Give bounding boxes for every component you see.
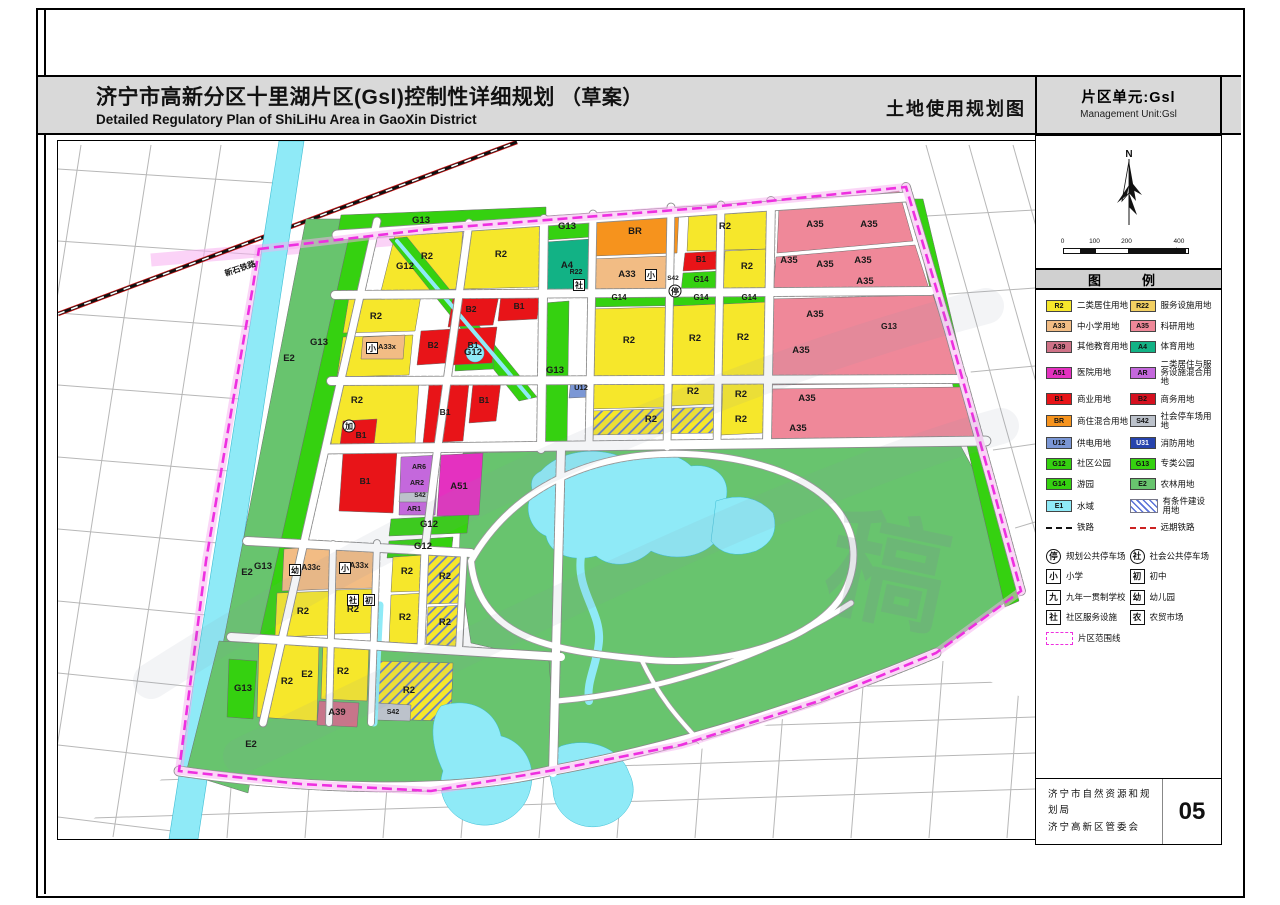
svg-text:E2: E2 <box>245 739 257 750</box>
svg-text:B2: B2 <box>428 340 439 350</box>
legend-label: 商业用地 <box>1077 395 1111 404</box>
legend-item: A39其他教育用地 <box>1046 339 1130 354</box>
legend-item: A35科研用地 <box>1130 319 1214 334</box>
legend-item: E1水域 <box>1046 497 1130 515</box>
page-title: 济宁市高新分区十里湖片区(Gsl)控制性详细规划（草案） <box>96 81 643 111</box>
legend-label: 服务设施用地 <box>1161 301 1212 310</box>
color-swatch: S42 <box>1130 415 1156 427</box>
svg-text:R2: R2 <box>370 311 382 322</box>
legend-item: 农农贸市场 <box>1130 610 1214 625</box>
legend-label: 供电用地 <box>1077 439 1111 448</box>
color-swatch: A33 <box>1046 320 1072 332</box>
svg-text:B1: B1 <box>479 396 490 405</box>
legend-item: G13专类公园 <box>1130 456 1214 471</box>
railway-line-icon <box>1046 527 1072 529</box>
svg-text:R2: R2 <box>439 617 451 628</box>
legend-item: U12供电用地 <box>1046 436 1130 451</box>
compass-block: N <box>1036 136 1221 238</box>
legend-item: 社社会公共停车场 <box>1130 549 1214 564</box>
svg-text:A35: A35 <box>806 219 824 230</box>
binding-line <box>44 8 46 894</box>
scale-labels: 0100200400米 <box>1063 238 1195 248</box>
svg-text:B1: B1 <box>440 407 451 417</box>
svg-text:A35: A35 <box>816 259 834 270</box>
legend-item: 幼幼儿园 <box>1130 590 1214 605</box>
legend-label: 铁路 <box>1077 523 1094 532</box>
legend-item: G12社区公园 <box>1046 456 1130 471</box>
legend-row: A51医院用地AR二类居住与服务设施混合用地 <box>1046 360 1213 387</box>
svg-text:G13: G13 <box>558 221 576 232</box>
legend-label: 体育用地 <box>1161 342 1195 351</box>
legend-label: 初中 <box>1150 572 1167 581</box>
svg-text:A35: A35 <box>798 393 816 404</box>
svg-text:B1: B1 <box>356 430 367 440</box>
svg-text:R2: R2 <box>337 666 349 677</box>
legend-label: 社会停车场用地 <box>1161 412 1214 430</box>
legend-label: 农贸市场 <box>1150 613 1184 622</box>
svg-text:AR6: AR6 <box>412 464 426 471</box>
svg-text:R2: R2 <box>421 251 433 262</box>
svg-text:A33x: A33x <box>349 561 369 570</box>
svg-text:R2: R2 <box>737 332 749 343</box>
facility-symbol-icon: 农 <box>1130 610 1145 625</box>
svg-text:R22: R22 <box>570 269 583 276</box>
svg-text:加: 加 <box>344 421 353 431</box>
legend-boundary-row: 片区范围线 <box>1046 631 1213 646</box>
legend-item: 有条件建设用地 <box>1130 497 1214 515</box>
color-swatch: G12 <box>1046 458 1072 470</box>
svg-text:A33x: A33x <box>378 342 397 351</box>
legend-label: 小学 <box>1066 572 1083 581</box>
svg-text:S42: S42 <box>414 492 426 499</box>
sidebar: N 0100200400米 图 例 R2二类居住用地R22服务设施用地A33中小… <box>1035 135 1222 845</box>
land-use-map: 稿G13G13G13G13G13G13G13E2E2E2E2G12G12G12G… <box>58 141 1036 839</box>
color-swatch: AR <box>1130 367 1156 379</box>
legend-item: A4体育用地 <box>1130 339 1214 354</box>
legend-item: B1商业用地 <box>1046 392 1130 407</box>
svg-text:B1: B1 <box>514 301 525 311</box>
scale-bar-segments <box>1063 248 1189 254</box>
future-railway-line-icon <box>1130 527 1156 529</box>
map-canvas: 稿G13G13G13G13G13G13G13E2E2E2E2G12G12G12G… <box>57 140 1037 840</box>
color-swatch: E1 <box>1046 500 1072 512</box>
draft-tag: （草案） <box>561 87 643 109</box>
color-swatch: A39 <box>1046 341 1072 353</box>
svg-text:G12: G12 <box>420 519 438 530</box>
svg-text:G13: G13 <box>881 321 897 331</box>
svg-text:小: 小 <box>340 563 349 573</box>
legend-label: 农林用地 <box>1161 480 1195 489</box>
color-swatch: U31 <box>1130 437 1156 449</box>
svg-text:A33: A33 <box>618 269 635 280</box>
svg-text:R2: R2 <box>401 566 413 577</box>
legend-row: E1水域有条件建设用地 <box>1046 497 1213 515</box>
svg-text:AR2: AR2 <box>410 480 424 487</box>
title-block: 济宁市高新分区十里湖片区(Gsl)控制性详细规划（草案） Detailed Re… <box>96 81 643 127</box>
svg-text:G13: G13 <box>310 337 328 348</box>
svg-text:E2: E2 <box>283 353 295 364</box>
legend-list: R2二类居住用地R22服务设施用地A33中小学用地A35科研用地A39其他教育用… <box>1036 290 1221 535</box>
svg-text:B1: B1 <box>696 255 707 264</box>
svg-text:幼: 幼 <box>291 565 299 575</box>
legend-item: S42社会停车场用地 <box>1130 412 1214 430</box>
svg-text:G14: G14 <box>693 293 709 302</box>
color-swatch: A35 <box>1130 320 1156 332</box>
svg-text:S42: S42 <box>387 709 400 716</box>
color-swatch: U12 <box>1046 437 1072 449</box>
svg-text:初: 初 <box>365 595 373 605</box>
legend-label: 水域 <box>1077 502 1094 511</box>
color-swatch: G13 <box>1130 458 1156 470</box>
svg-text:R2: R2 <box>689 333 701 344</box>
title-band: 济宁市高新分区十里湖片区(Gsl)控制性详细规划（草案） Detailed Re… <box>38 75 1241 135</box>
legend-item: E2农林用地 <box>1130 477 1214 492</box>
svg-text:A35: A35 <box>860 219 878 230</box>
legend-row: U12供电用地U31消防用地 <box>1046 436 1213 451</box>
facility-symbol-icon: 停 <box>1046 549 1061 564</box>
legend-item: 铁路 <box>1046 520 1130 535</box>
color-swatch: E2 <box>1130 478 1156 490</box>
svg-text:G13: G13 <box>254 561 272 572</box>
svg-text:B2: B2 <box>466 304 477 314</box>
svg-text:社: 社 <box>574 280 583 290</box>
unit-label-cn: 片区单元:Gsl <box>1037 86 1220 107</box>
facility-symbol-icon: 幼 <box>1130 590 1145 605</box>
facility-symbol-icon: 小 <box>1046 569 1061 584</box>
svg-text:E2: E2 <box>301 669 313 680</box>
legend-item: 初初中 <box>1130 569 1214 584</box>
svg-text:G13: G13 <box>234 683 252 694</box>
legend-item: 九九年一贯制学校 <box>1046 590 1130 605</box>
color-swatch: G14 <box>1046 478 1072 490</box>
svg-text:G12: G12 <box>396 261 414 272</box>
legend-item: 远期铁路 <box>1130 520 1214 535</box>
color-swatch: A51 <box>1046 367 1072 379</box>
legend-label: 二类居住与服务设施混合用地 <box>1161 360 1214 387</box>
svg-text:R2: R2 <box>741 261 753 272</box>
svg-text:R2: R2 <box>495 249 507 260</box>
svg-text:小: 小 <box>367 343 376 353</box>
legend-label: 社会公共停车场 <box>1150 552 1210 561</box>
legend-item: BR商住混合用地 <box>1046 412 1130 430</box>
svg-text:R2: R2 <box>735 389 747 400</box>
svg-text:R2: R2 <box>281 676 293 687</box>
svg-text:BR: BR <box>628 226 642 237</box>
legend-item: 片区范围线 <box>1046 631 1130 646</box>
map-sheet-name: 土地使用规划图 <box>876 95 1036 121</box>
svg-text:社: 社 <box>348 595 357 605</box>
legend-item: A33中小学用地 <box>1046 319 1130 334</box>
facility-symbol-icon: 社 <box>1046 610 1061 625</box>
color-swatch: R2 <box>1046 300 1072 312</box>
legend-label: 医院用地 <box>1077 368 1111 377</box>
legend-label: 社区服务设施 <box>1066 613 1117 622</box>
legend-label: 幼儿园 <box>1150 593 1176 602</box>
legend-label: 消防用地 <box>1161 439 1195 448</box>
svg-text:AR1: AR1 <box>407 506 421 513</box>
svg-text:G12: G12 <box>414 541 432 552</box>
color-swatch: A4 <box>1130 341 1156 353</box>
svg-text:R2: R2 <box>645 414 657 425</box>
color-swatch: BR <box>1046 415 1072 427</box>
legend-item: AR二类居住与服务设施混合用地 <box>1130 360 1214 387</box>
legend-label: 二类居住用地 <box>1077 301 1128 310</box>
svg-text:A35: A35 <box>789 423 807 434</box>
legend-row: B1商业用地B2商务用地 <box>1046 392 1213 407</box>
legend-symbol-row: 小小学初初中 <box>1046 569 1213 584</box>
svg-text:小: 小 <box>646 270 655 280</box>
hatch-swatch <box>1130 499 1158 513</box>
color-swatch: R22 <box>1130 300 1156 312</box>
legend-item <box>1130 631 1214 646</box>
svg-text:A35: A35 <box>806 309 824 320</box>
facility-symbol-icon: 九 <box>1046 590 1061 605</box>
svg-text:R2: R2 <box>735 414 747 425</box>
svg-text:G14: G14 <box>611 293 627 302</box>
legend-label: 九年一贯制学校 <box>1066 593 1126 602</box>
north-arrow-icon: N <box>1106 145 1152 229</box>
north-label: N <box>1125 149 1132 160</box>
legend-label: 其他教育用地 <box>1077 342 1128 351</box>
svg-text:R2: R2 <box>403 685 415 696</box>
boundary-swatch <box>1046 632 1073 645</box>
legend-item: A51医院用地 <box>1046 360 1130 387</box>
svg-text:G13: G13 <box>546 365 564 376</box>
svg-text:B1: B1 <box>468 340 479 350</box>
unit-label-en: Management Unit:Gsl <box>1037 109 1220 120</box>
page-number: 05 <box>1162 779 1221 844</box>
color-swatch: B2 <box>1130 393 1156 405</box>
legend-item: 社社区服务设施 <box>1046 610 1130 625</box>
legend-symbols: 停规划公共停车场社社会公共停车场小小学初初中九九年一贯制学校幼幼儿园社社区服务设… <box>1036 541 1221 646</box>
legend-label: 专类公园 <box>1161 459 1195 468</box>
svg-text:S42: S42 <box>667 275 679 282</box>
page-title-cn: 济宁市高新分区十里湖片区(Gsl)控制性详细规划 <box>96 86 555 109</box>
legend-label: 科研用地 <box>1161 322 1195 331</box>
legend-symbol-row: 九九年一贯制学校幼幼儿园 <box>1046 590 1213 605</box>
legend-label: 社区公园 <box>1077 459 1111 468</box>
legend-item: 小小学 <box>1046 569 1130 584</box>
agency-line1: 济宁市自然资源和规划局 <box>1048 787 1162 819</box>
legend-item: U31消防用地 <box>1130 436 1214 451</box>
legend-label: 中小学用地 <box>1077 322 1120 331</box>
legend-item: 停规划公共停车场 <box>1046 549 1130 564</box>
unit-box: 片区单元:Gsl Management Unit:Gsl <box>1035 77 1222 133</box>
svg-text:R2: R2 <box>623 335 635 346</box>
svg-text:A35: A35 <box>856 276 874 287</box>
legend-row: G14游园E2农林用地 <box>1046 477 1213 492</box>
legend-label: 片区范围线 <box>1078 634 1121 643</box>
facility-symbol-icon: 初 <box>1130 569 1145 584</box>
legend-row: G12社区公园G13专类公园 <box>1046 456 1213 471</box>
svg-text:R2: R2 <box>439 571 451 582</box>
svg-text:E2: E2 <box>241 567 253 578</box>
legend-item: B2商务用地 <box>1130 392 1214 407</box>
svg-text:A35: A35 <box>854 255 872 266</box>
legend-row: 铁路远期铁路 <box>1046 520 1213 535</box>
page-title-en: Detailed Regulatory Plan of ShiLiHu Area… <box>96 112 643 127</box>
legend-item: R2二类居住用地 <box>1046 298 1130 313</box>
svg-text:G14: G14 <box>741 293 757 302</box>
svg-text:A35: A35 <box>792 345 810 356</box>
svg-text:R2: R2 <box>351 395 363 406</box>
legend-label: 商住混合用地 <box>1077 417 1128 426</box>
legend-header: 图 例 <box>1036 268 1221 290</box>
svg-text:B1: B1 <box>360 476 371 486</box>
legend-symbol-row: 社社区服务设施农农贸市场 <box>1046 610 1213 625</box>
svg-text:R2: R2 <box>297 606 309 617</box>
svg-text:G14: G14 <box>693 275 709 284</box>
svg-text:A39: A39 <box>328 707 345 718</box>
legend-symbol-row: 停规划公共停车场社社会公共停车场 <box>1046 549 1213 564</box>
legend-label: 远期铁路 <box>1161 523 1195 532</box>
svg-text:R2: R2 <box>719 221 731 232</box>
title-block-footer: 济宁市自然资源和规划局 济宁高新区管委会 05 <box>1036 778 1221 844</box>
agency-block: 济宁市自然资源和规划局 济宁高新区管委会 <box>1036 779 1162 844</box>
facility-symbol-icon: 社 <box>1130 549 1145 564</box>
plan-sheet: 济宁市高新分区十里湖片区(Gsl)控制性详细规划（草案） Detailed Re… <box>0 0 1280 905</box>
svg-text:R2: R2 <box>687 386 699 397</box>
legend-row: R2二类居住用地R22服务设施用地 <box>1046 298 1213 313</box>
agency-line2: 济宁高新区管委会 <box>1048 820 1162 836</box>
svg-text:A35: A35 <box>780 255 798 266</box>
legend-label: 规划公共停车场 <box>1066 552 1126 561</box>
svg-text:停: 停 <box>671 286 679 296</box>
scale-bar: 0100200400米 <box>1063 238 1195 268</box>
legend-label: 商务用地 <box>1161 395 1195 404</box>
legend-row: BR商住混合用地S42社会停车场用地 <box>1046 412 1213 430</box>
legend-item: R22服务设施用地 <box>1130 298 1214 313</box>
svg-text:R2: R2 <box>399 612 411 623</box>
legend-label: 游园 <box>1077 480 1094 489</box>
svg-text:A51: A51 <box>450 481 468 492</box>
color-swatch: B1 <box>1046 393 1072 405</box>
legend-label: 有条件建设用地 <box>1163 497 1214 515</box>
svg-text:U12: U12 <box>574 383 588 392</box>
legend-row: A39其他教育用地A4体育用地 <box>1046 339 1213 354</box>
svg-text:G13: G13 <box>412 215 430 226</box>
legend-item: G14游园 <box>1046 477 1130 492</box>
legend-row: A33中小学用地A35科研用地 <box>1046 319 1213 334</box>
svg-text:A33c: A33c <box>301 563 321 572</box>
